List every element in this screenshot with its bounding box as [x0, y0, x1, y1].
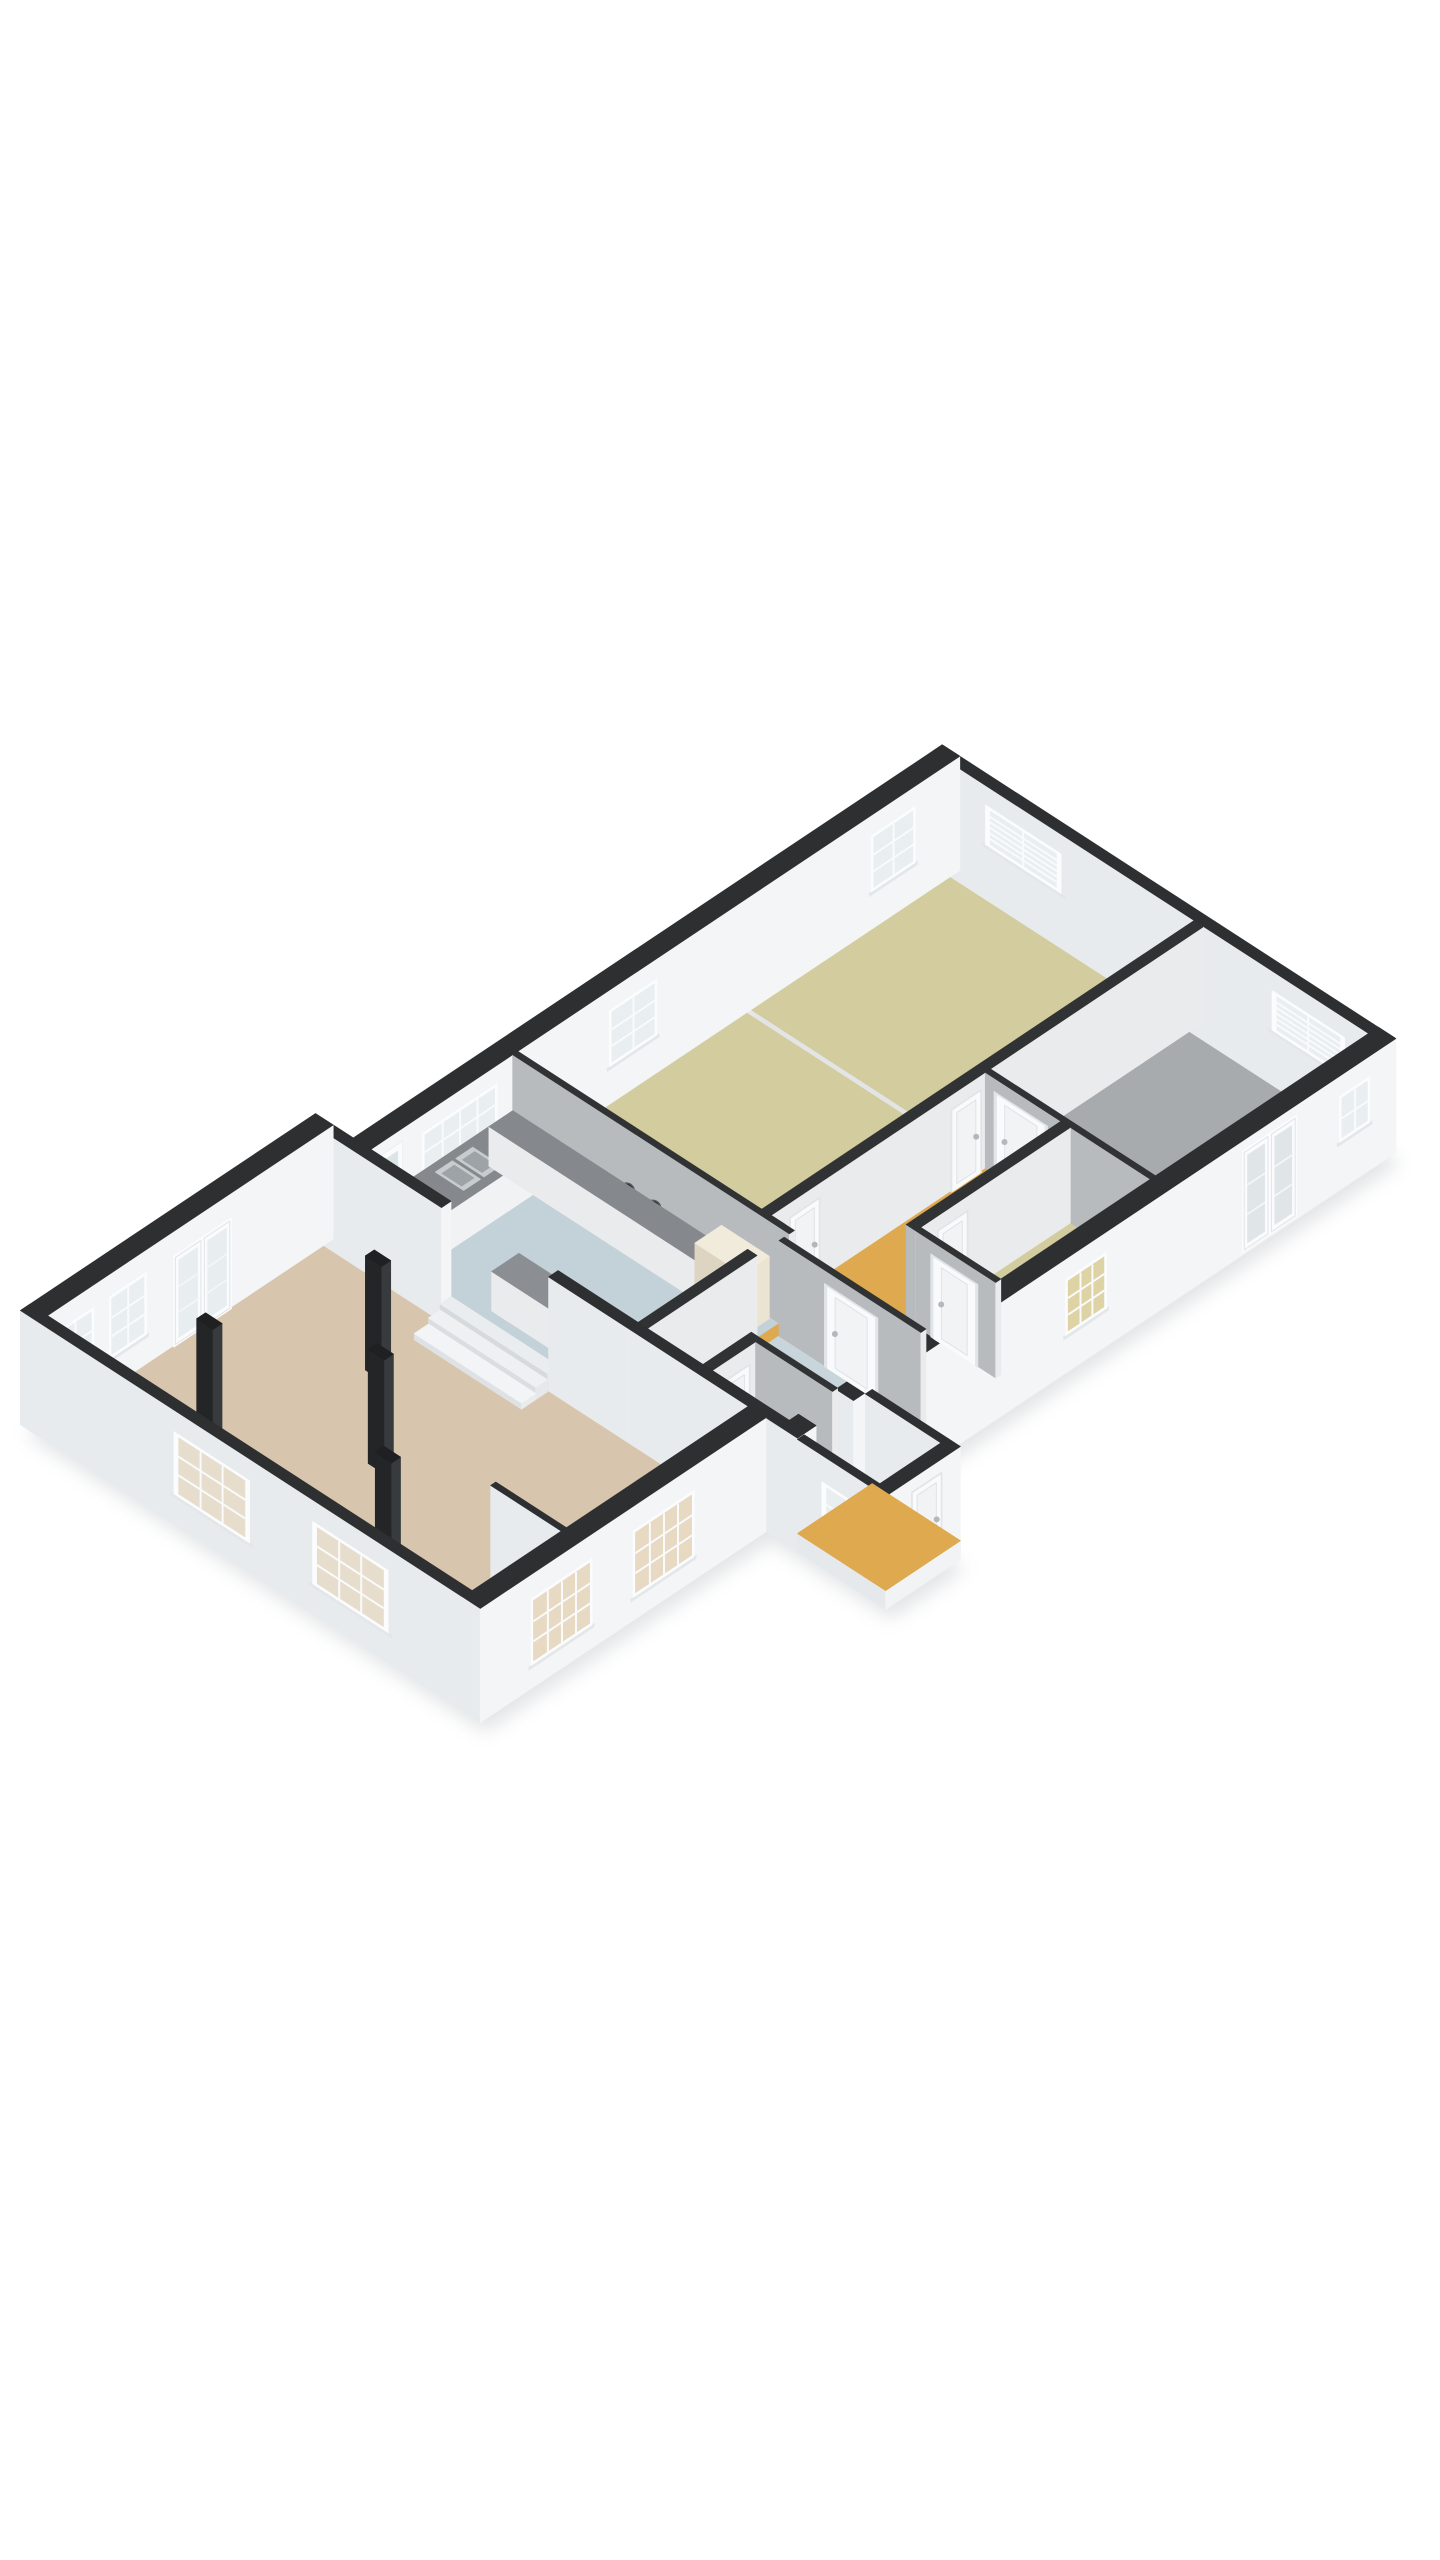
- door-bedroom-b-handle: [812, 1242, 818, 1248]
- door-grayroom-french-glass-1: [1248, 1144, 1265, 1243]
- door-grayroom-french-glass-2: [1275, 1126, 1292, 1225]
- door-bedroom-a-handle: [973, 1134, 979, 1140]
- door-living-french-glass-2: [208, 1228, 227, 1318]
- floorplan-page: [0, 0, 1440, 2560]
- wall-bathroom-ne-face: [921, 1329, 926, 1428]
- door-grayroom-handle: [1002, 1139, 1008, 1145]
- door-closet-handle: [938, 1302, 944, 1308]
- wall-living-se-face: [463, 1597, 481, 1723]
- door-front-handle: [934, 1516, 940, 1522]
- wall-corridor-se-face: [906, 1225, 915, 1327]
- door-bedroom-a-panel: [957, 1100, 976, 1184]
- door-living-french-glass-1: [179, 1248, 198, 1338]
- wall-exterior-se-a-face: [780, 1427, 798, 1553]
- floorplan-3d-render: [0, 0, 1440, 2560]
- wall-bedroom-c-sw-face: [996, 1279, 1001, 1378]
- door-bathroom-handle: [832, 1331, 838, 1337]
